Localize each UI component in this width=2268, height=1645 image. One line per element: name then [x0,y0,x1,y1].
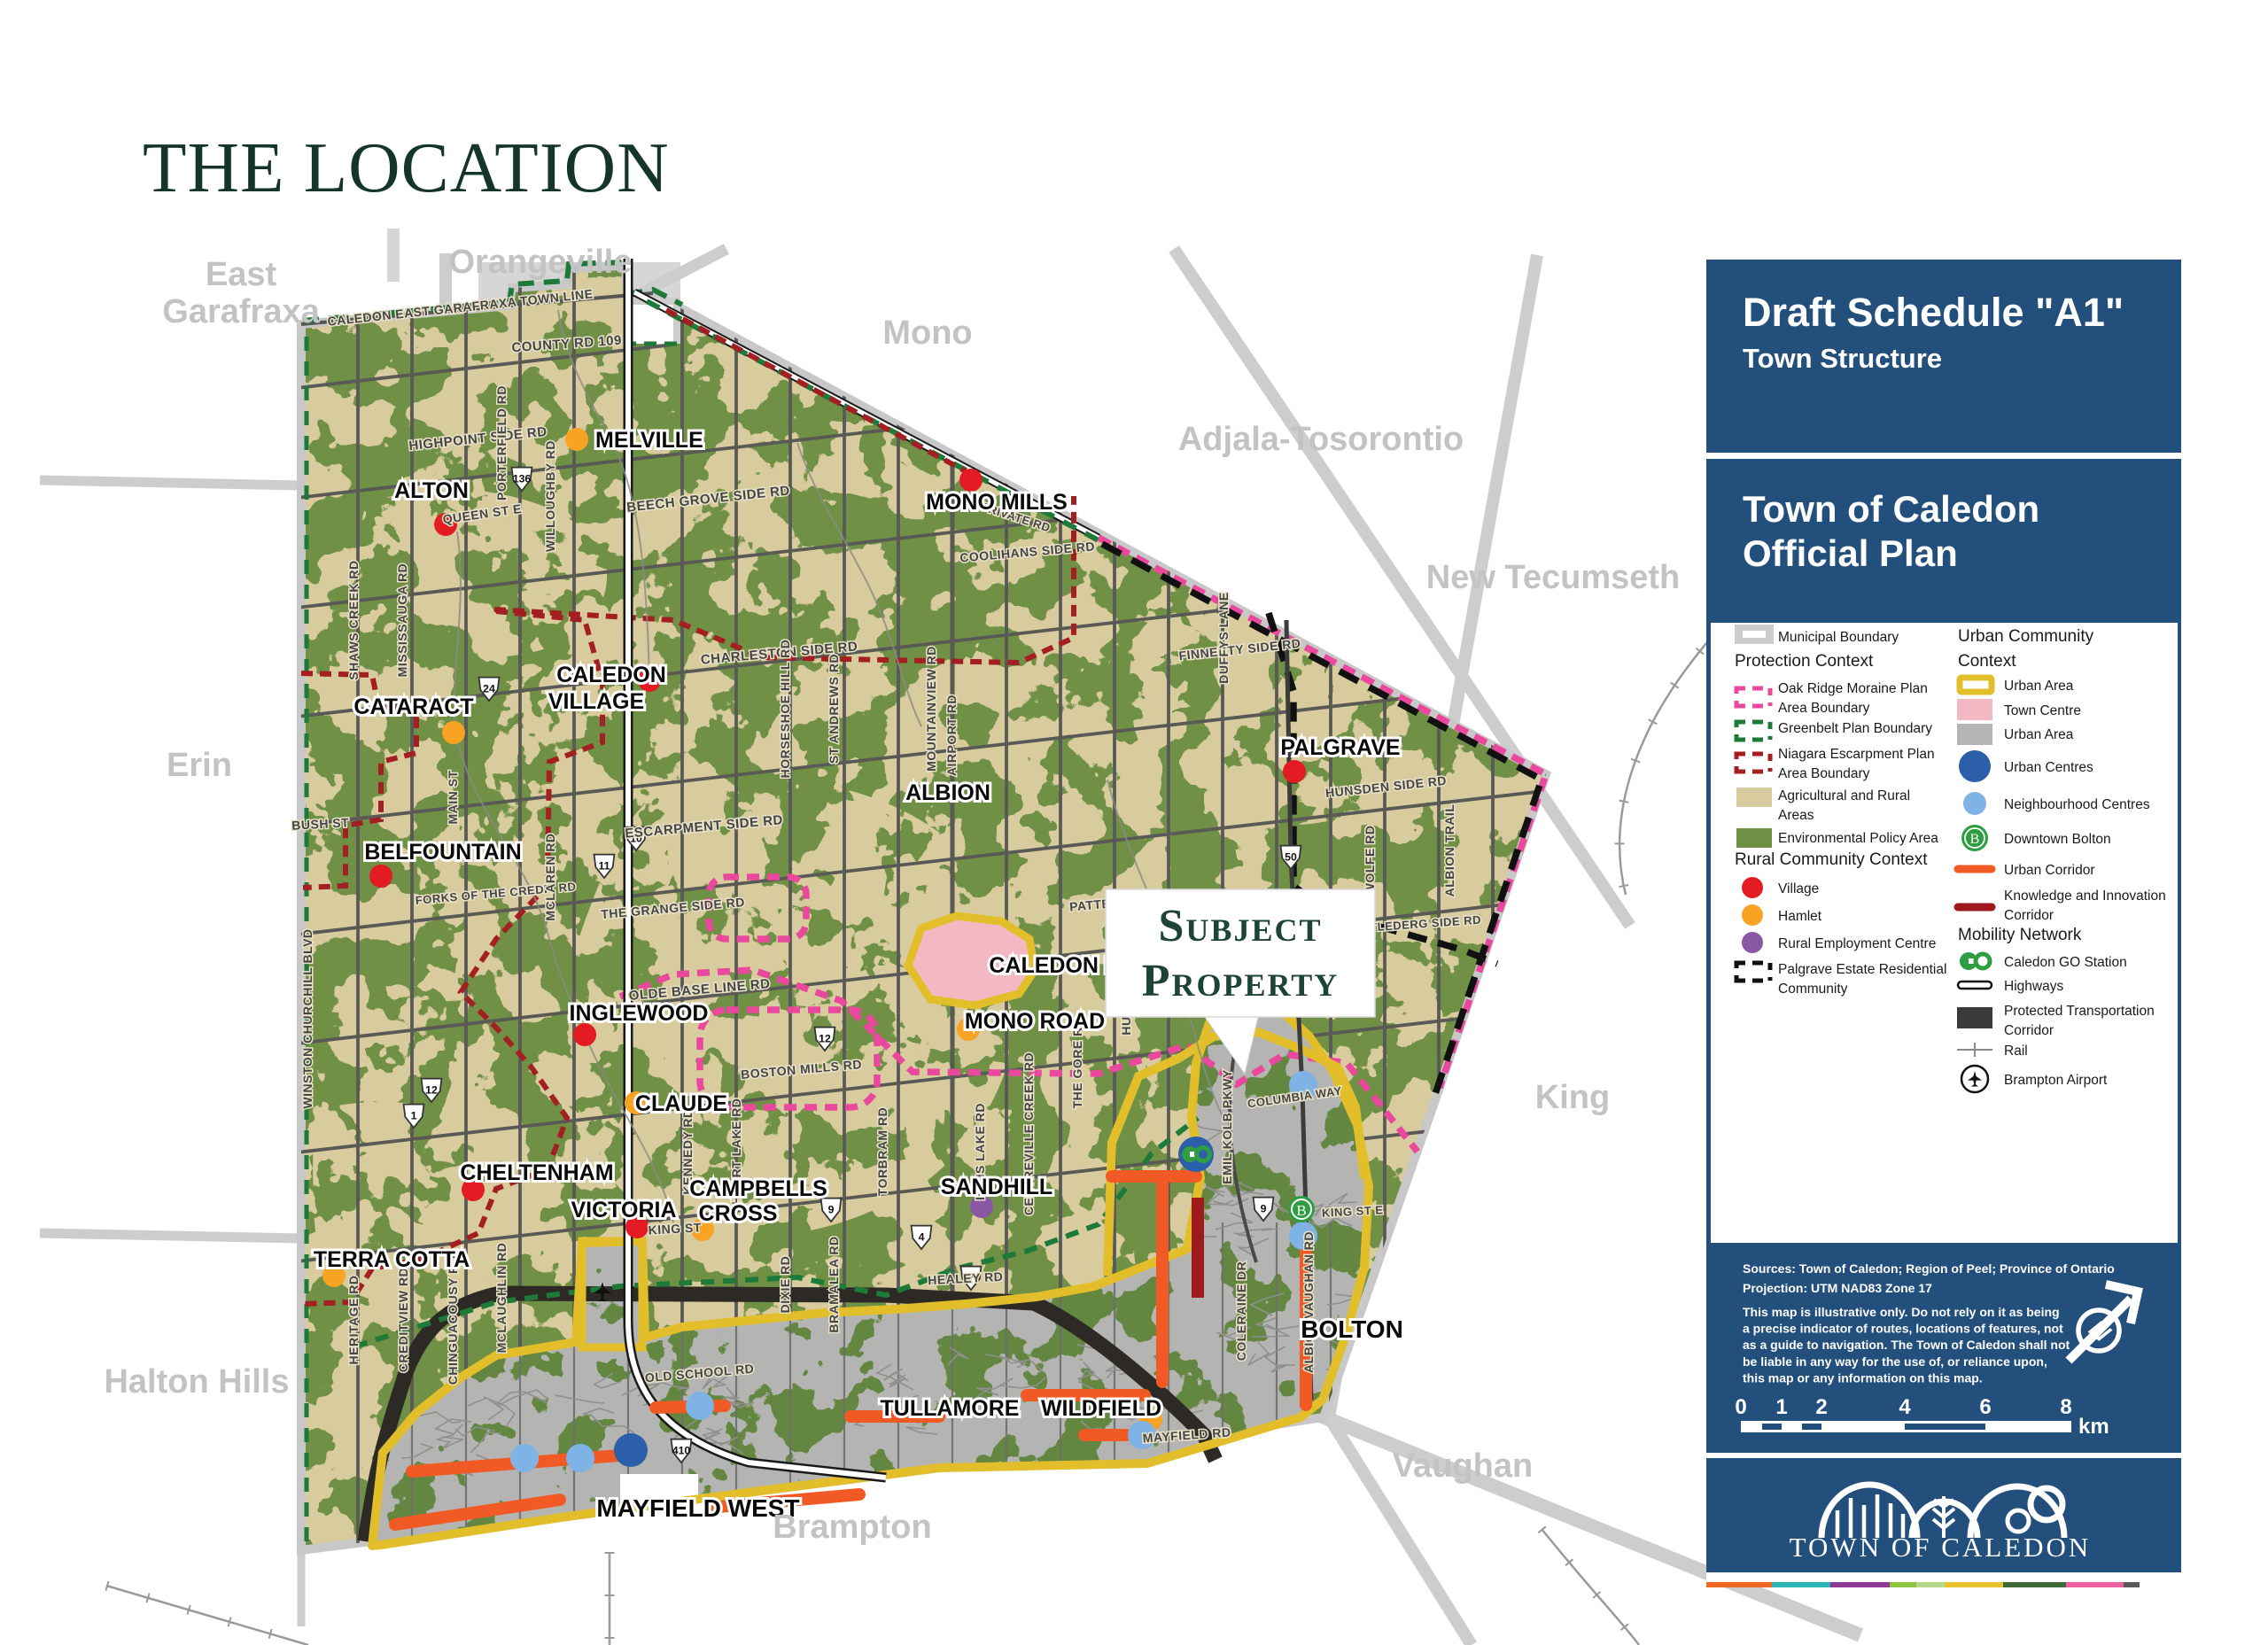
svg-text:TORBRAM RD: TORBRAM RD [875,1107,889,1196]
svg-text:MCLAUGHLIN RD: MCLAUGHLIN RD [494,1243,509,1354]
svg-text:DUFFYS LANE: DUFFYS LANE [1216,592,1231,684]
svg-text:12: 12 [819,1032,831,1044]
svg-text:Agricultural and Rural: Agricultural and Rural [1778,788,1910,803]
svg-text:MAYFIELD WEST: MAYFIELD WEST [596,1494,799,1522]
svg-text:WILLOUGHBY RD: WILLOUGHBY RD [543,440,557,552]
svg-text:Greenbelt Plan Boundary: Greenbelt Plan Boundary [1778,721,1932,736]
svg-text:TOWN OF CALEDON: TOWN OF CALEDON [1790,1532,2092,1563]
svg-text:CHELTENHAM: CHELTENHAM [460,1160,613,1185]
svg-text:Oak Ridge Moraine Plan: Oak Ridge Moraine Plan [1778,681,1928,696]
svg-text:km: km [2078,1415,2109,1439]
svg-text:TULLAMORE: TULLAMORE [881,1396,1020,1421]
svg-text:Brampton Airport: Brampton Airport [2004,1073,2108,1088]
svg-text:Caledon GO Station: Caledon GO Station [2004,955,2127,970]
svg-text:1: 1 [1775,1395,1787,1419]
svg-text:Highways: Highways [2004,979,2063,994]
svg-text:Municipal Boundary: Municipal Boundary [1778,630,1899,645]
svg-text:MISSISSAUGA RD: MISSISSAUGA RD [395,563,409,678]
svg-text:Knowledge and Innovation: Knowledge and Innovation [2004,888,2166,904]
svg-text:Areas: Areas [1778,808,1814,823]
svg-text:CALEDON: CALEDON [556,663,666,687]
svg-text:Context: Context [1958,652,2016,671]
svg-text:MAIN ST: MAIN ST [446,770,460,824]
svg-text:Urban Centres: Urban Centres [2004,760,2093,775]
svg-text:Palgrave Estate Residential: Palgrave Estate Residential [1778,962,1946,977]
svg-text:ALBION: ALBION [905,780,990,805]
svg-text:12: 12 [425,1083,438,1096]
svg-text:Adjala-Tosorontio: Adjala-Tosorontio [1178,421,1464,458]
svg-text:Halton Hills: Halton Hills [104,1363,289,1401]
svg-text:Urban Community: Urban Community [1958,627,2094,646]
svg-text:be liable in any way for the u: be liable in any way for the use of, or … [1743,1354,2047,1369]
svg-text:Downtown Bolton: Downtown Bolton [2004,832,2111,847]
svg-text:Subject: Subject [1159,901,1323,951]
svg-text:Corridor: Corridor [2004,908,2054,923]
svg-text:Orangeville: Orangeville [449,244,633,281]
svg-text:6: 6 [1979,1395,1991,1419]
svg-text:9: 9 [1261,1202,1267,1214]
svg-text:MONO MILLS: MONO MILLS [926,490,1068,515]
svg-text:CHINGUACOUSY RD: CHINGUACOUSY RD [446,1255,460,1385]
svg-text:Urban Corridor: Urban Corridor [2004,863,2095,878]
svg-text:AIRPORT RD: AIRPORT RD [944,694,959,776]
svg-text:MCLAREN RD: MCLAREN RD [543,833,557,920]
svg-text:CREDITVIEW RD: CREDITVIEW RD [396,1268,410,1373]
svg-text:Projection: UTM NAD83 Zone 17: Projection: UTM NAD83 Zone 17 [1743,1281,1932,1295]
svg-text:BELFOUNTAIN: BELFOUNTAIN [364,840,521,865]
svg-text:8: 8 [2060,1395,2071,1419]
svg-text:24: 24 [483,682,495,694]
svg-text:CAMPBELLS: CAMPBELLS [689,1176,827,1201]
svg-text:BUSH ST: BUSH ST [291,815,350,832]
svg-text:2: 2 [1815,1395,1827,1419]
svg-text:B: B [1296,1202,1306,1219]
svg-text:11: 11 [598,859,610,872]
svg-text:136: 136 [513,472,532,485]
svg-text:BRAMALEA RD: BRAMALEA RD [827,1236,841,1332]
svg-text:50: 50 [1285,850,1297,863]
svg-text:Erin: Erin [167,747,232,784]
svg-text:SANDHILL: SANDHILL [941,1175,1052,1199]
svg-text:COLERAINE DR: COLERAINE DR [1234,1261,1248,1362]
svg-text:Protected Transportation: Protected Transportation [2004,1004,2155,1019]
svg-text:B: B [1970,832,1980,847]
svg-text:Rural Employment Centre: Rural Employment Centre [1778,936,1936,951]
svg-text:Property: Property [1142,956,1340,1006]
svg-text:TERRA COTTA: TERRA COTTA [314,1247,470,1272]
svg-text:Urban Area: Urban Area [2004,679,2074,694]
svg-text:East: East [206,256,277,293]
svg-text:CLAUDE: CLAUDE [635,1091,727,1116]
svg-text:King: King [1535,1079,1610,1116]
svg-text:PALGRAVE: PALGRAVE [1280,735,1400,760]
svg-text:HERITAGE RD: HERITAGE RD [346,1276,361,1365]
svg-text:Environmental Policy Area: Environmental Policy Area [1778,831,1938,846]
svg-text:Village: Village [1778,881,1819,896]
svg-text:Community: Community [1778,982,1848,997]
svg-text:Rural Community Context: Rural Community Context [1735,850,1928,869]
svg-text:VILLAGE: VILLAGE [548,689,644,714]
svg-text:New Tecumseth: New Tecumseth [1426,559,1680,596]
svg-text:MELVILLE: MELVILLE [595,428,703,453]
svg-text:a precise indicator of routes,: a precise indicator of routes, locations… [1743,1322,2063,1336]
svg-text:Vaughan: Vaughan [1393,1447,1533,1485]
svg-text:ALTON: ALTON [394,478,469,503]
svg-text:WILDFIELD: WILDFIELD [1041,1396,1161,1421]
svg-text:Mobility Network: Mobility Network [1958,926,2082,944]
svg-text:EMIL KOLB PKWY: EMIL KOLB PKWY [1220,1069,1234,1184]
svg-text:Town Centre: Town Centre [2004,703,2081,718]
svg-text:Niagara Escarpment Plan: Niagara Escarpment Plan [1778,747,1935,762]
svg-text:Sources: Town of Caledon; Regi: Sources: Town of Caledon; Region of Peel… [1743,1261,2115,1276]
svg-text:INGLEWOOD: INGLEWOOD [570,1001,709,1026]
svg-text:SHAWS CREEK RD: SHAWS CREEK RD [346,560,361,679]
svg-text:ALBION VAUGHAN RD: ALBION VAUGHAN RD [1301,1231,1316,1373]
svg-text:1: 1 [411,1109,417,1121]
svg-text:Neighbourhood Centres: Neighbourhood Centres [2004,797,2150,812]
svg-text:Urban Area: Urban Area [2004,727,2074,742]
svg-text:HORSESHOE HILL RD: HORSESHOE HILL RD [778,640,792,779]
svg-text:VICTORIA: VICTORIA [571,1198,677,1222]
svg-text:Brampton: Brampton [773,1509,931,1546]
svg-text:MONO ROAD: MONO ROAD [965,1009,1105,1034]
svg-text:ST ANDREWS RD: ST ANDREWS RD [827,654,841,764]
svg-text:BOLTON: BOLTON [1301,1315,1403,1343]
svg-text:410: 410 [672,1444,691,1456]
svg-text:This map is illustrative only.: This map is illustrative only. Do not re… [1743,1305,2060,1319]
svg-text:Mono: Mono [882,314,972,352]
svg-text:Area Boundary: Area Boundary [1778,766,1870,781]
svg-text:Protection Context: Protection Context [1735,652,1874,671]
svg-text:MOUNTAINVIEW RD: MOUNTAINVIEW RD [924,646,938,772]
svg-text:WINSTON CHURCHILL BLVD: WINSTON CHURCHILL BLVD [300,928,315,1108]
svg-text:ALBION TRAIL: ALBION TRAIL [1442,804,1456,897]
svg-text:CROSS: CROSS [699,1201,778,1226]
svg-text:0: 0 [1735,1395,1746,1419]
svg-text:KING ST: KING ST [648,1220,702,1237]
svg-text:as a guide to navigation. The: as a guide to navigation. The Town of Ca… [1743,1338,2070,1352]
svg-text:this map or any information on: this map or any information on this map. [1743,1370,1983,1385]
svg-text:Rail: Rail [2004,1044,2028,1059]
svg-text:4: 4 [919,1230,925,1243]
svg-text:9: 9 [828,1203,835,1215]
svg-text:CATARACT: CATARACT [353,694,473,719]
svg-text:Garafraxa: Garafraxa [162,293,320,330]
svg-text:Hamlet: Hamlet [1778,909,1822,924]
svg-text:Area Boundary: Area Boundary [1778,701,1870,716]
svg-text:4: 4 [1899,1395,1911,1419]
svg-text:PORTERFIELD RD: PORTERFIELD RD [494,385,509,500]
svg-text:Corridor: Corridor [2004,1023,2054,1038]
svg-text:DIXIE RD: DIXIE RD [778,1256,792,1314]
